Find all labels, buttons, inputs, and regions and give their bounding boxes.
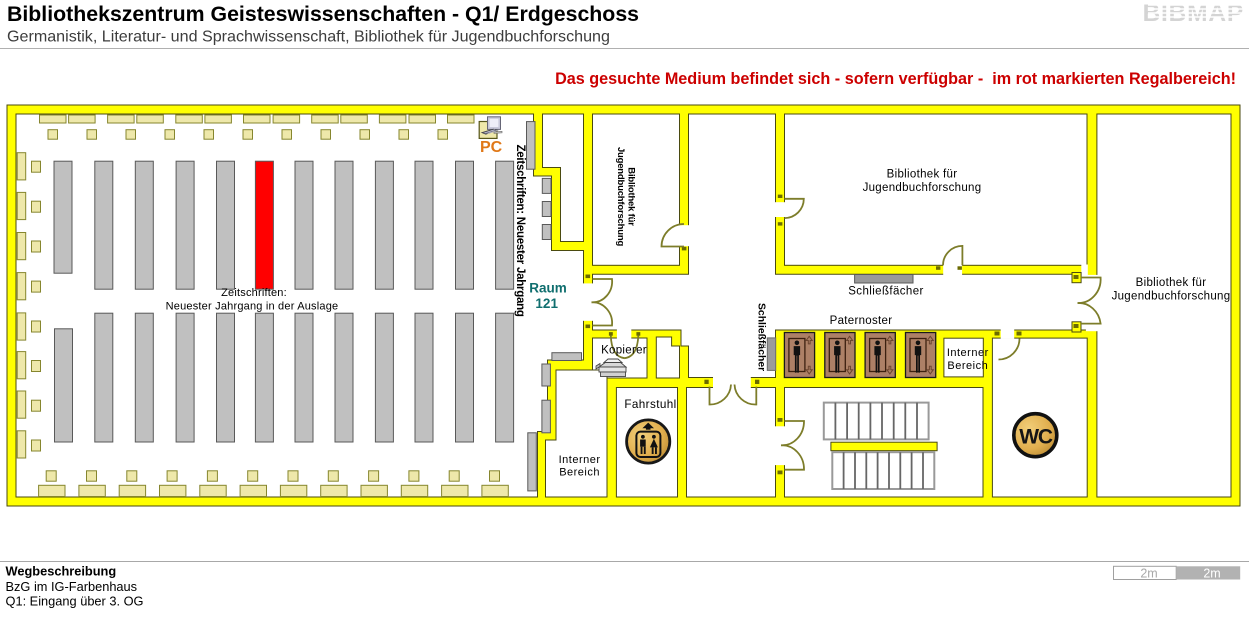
- svg-text:Neuester Jahrgang in der Ausla: Neuester Jahrgang in der Auslage: [166, 301, 339, 313]
- svg-text:Schließfächer: Schließfächer: [756, 303, 767, 371]
- svg-text:WC: WC: [1019, 426, 1053, 449]
- svg-text:Schließfächer: Schließfächer: [848, 286, 924, 298]
- svg-text:Fahrstuhl: Fahrstuhl: [624, 398, 676, 411]
- svg-text:Interner: Interner: [947, 347, 989, 359]
- svg-text:Bibliothek für: Bibliothek für: [887, 168, 958, 180]
- svg-text:Wegbeschreibung: Wegbeschreibung: [6, 563, 117, 578]
- svg-text:2m: 2m: [1203, 566, 1220, 580]
- svg-text:Kopierer: Kopierer: [601, 345, 647, 357]
- svg-text:Paternoster: Paternoster: [830, 315, 893, 327]
- svg-text:Zeitschriften:: Zeitschriften:: [221, 287, 287, 299]
- svg-text:Das gesuchte Medium befindet s: Das gesuchte Medium befindet sich - sofe…: [555, 70, 1236, 88]
- svg-text:BzG im IG-Farbenhaus: BzG im IG-Farbenhaus: [6, 579, 138, 594]
- svg-text:Interner: Interner: [559, 454, 601, 466]
- svg-text:Q1: Eingang über 3. OG: Q1: Eingang über 3. OG: [6, 594, 144, 609]
- svg-text:Jugendbuchforschung: Jugendbuchforschung: [615, 147, 626, 247]
- svg-text:Bibliothek für: Bibliothek für: [1136, 277, 1207, 289]
- svg-text:Bereich: Bereich: [947, 360, 988, 372]
- svg-text:Raum: Raum: [529, 281, 567, 296]
- svg-text:PC: PC: [480, 139, 503, 156]
- svg-text:Bereich: Bereich: [559, 466, 600, 478]
- svg-text:Bibliothek für: Bibliothek für: [626, 167, 637, 226]
- svg-text:Zeitschriften: Neuester Jahrga: Zeitschriften: Neuester Jahrgang: [514, 145, 526, 317]
- svg-text:Jugendbuchforschung: Jugendbuchforschung: [863, 182, 982, 194]
- svg-text:Germanistik, Literatur- und Sp: Germanistik, Literatur- und Sprachwissen…: [7, 28, 610, 46]
- svg-text:121: 121: [535, 296, 558, 311]
- svg-text:Jugendbuchforschung: Jugendbuchforschung: [1112, 291, 1231, 303]
- svg-text:2m: 2m: [1140, 566, 1157, 580]
- svg-text:Bibliothekszentrum Geisteswiss: Bibliothekszentrum Geisteswissenschaften…: [7, 2, 639, 26]
